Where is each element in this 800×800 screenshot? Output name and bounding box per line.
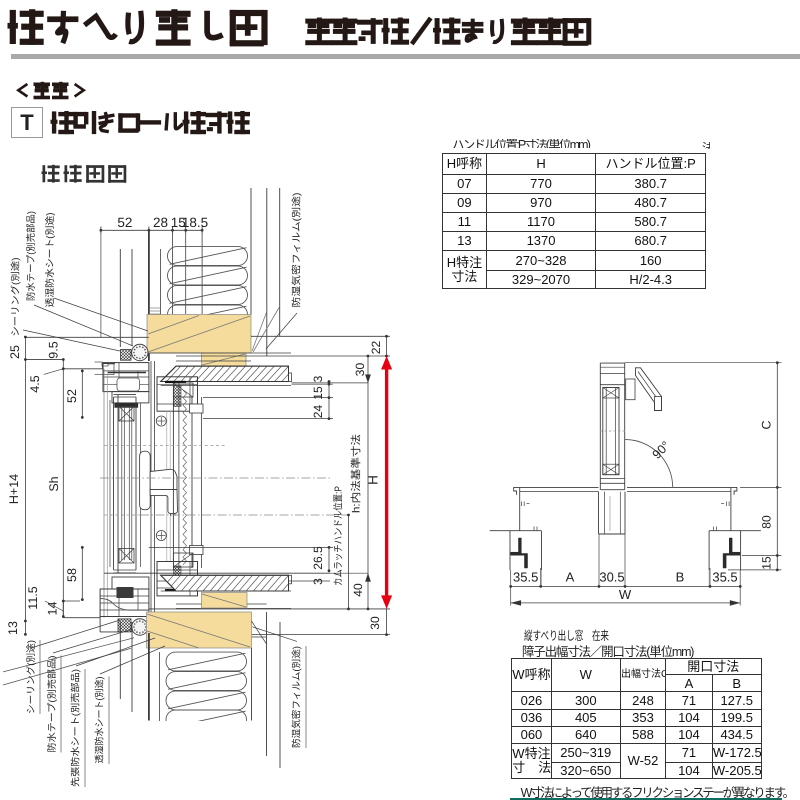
svg-text:防湿気密フィルム(別途): 防湿気密フィルム(別途) [291, 646, 303, 748]
svg-text:W: W [619, 587, 632, 602]
svg-text:防湿気密フィルム(別途): 防湿気密フィルム(別途) [291, 193, 303, 308]
svg-text:3: 3 [311, 375, 325, 382]
svg-text:Sh: Sh [47, 476, 61, 491]
svg-text:15: 15 [760, 556, 774, 570]
svg-text:カムラッチハンドル位置:P: カムラッチハンドル位置:P [333, 486, 345, 586]
svg-text:防水テープ(別売部品): 防水テープ(別売部品) [25, 211, 37, 301]
svg-text:22: 22 [369, 341, 383, 355]
svg-text:シーリング(別途): シーリング(別途) [10, 258, 22, 337]
svg-text:26.5: 26.5 [311, 546, 325, 570]
svg-text:24: 24 [311, 405, 325, 419]
svg-text:30.5: 30.5 [599, 570, 624, 585]
svg-text:防水テープ(別売部品): 防水テープ(別売部品) [46, 656, 58, 753]
svg-text:35.5: 35.5 [513, 570, 538, 585]
svg-text:シーリング(別途): シーリング(別途) [25, 640, 37, 714]
svg-text:C: C [760, 420, 774, 429]
svg-text:H: H [366, 475, 381, 485]
svg-text:H+14: H+14 [7, 474, 21, 504]
svg-text:11.5: 11.5 [26, 586, 40, 609]
svg-text:80: 80 [760, 515, 774, 529]
svg-text:25: 25 [8, 345, 22, 359]
svg-text:9.5: 9.5 [47, 341, 61, 358]
svg-text:13: 13 [6, 621, 20, 635]
svg-text:18.5: 18.5 [182, 215, 208, 230]
svg-text:14: 14 [46, 602, 60, 616]
svg-text:透湿防水シート(別途): 透湿防水シート(別途) [44, 213, 56, 308]
svg-text:40: 40 [351, 583, 365, 597]
svg-text:52: 52 [65, 389, 79, 403]
svg-text:4.5: 4.5 [28, 375, 42, 392]
svg-text:先張防水シート(別売部品): 先張防水シート(別売部品) [70, 669, 82, 787]
svg-text:h:内法基準寸法: h:内法基準寸法 [351, 434, 363, 513]
svg-text:90°: 90° [650, 439, 673, 462]
svg-text:B: B [676, 570, 685, 585]
svg-text:透湿防水シート(別途): 透湿防水シート(別途) [94, 677, 106, 764]
svg-text:A: A [566, 570, 575, 585]
svg-text:3: 3 [311, 578, 325, 585]
svg-text:52: 52 [117, 215, 132, 230]
svg-text:30: 30 [353, 363, 367, 377]
svg-text:28: 28 [153, 215, 168, 230]
svg-text:30: 30 [368, 616, 382, 630]
svg-text:35.5: 35.5 [712, 570, 737, 585]
svg-text:58: 58 [65, 568, 79, 582]
svg-text:15: 15 [311, 386, 325, 400]
